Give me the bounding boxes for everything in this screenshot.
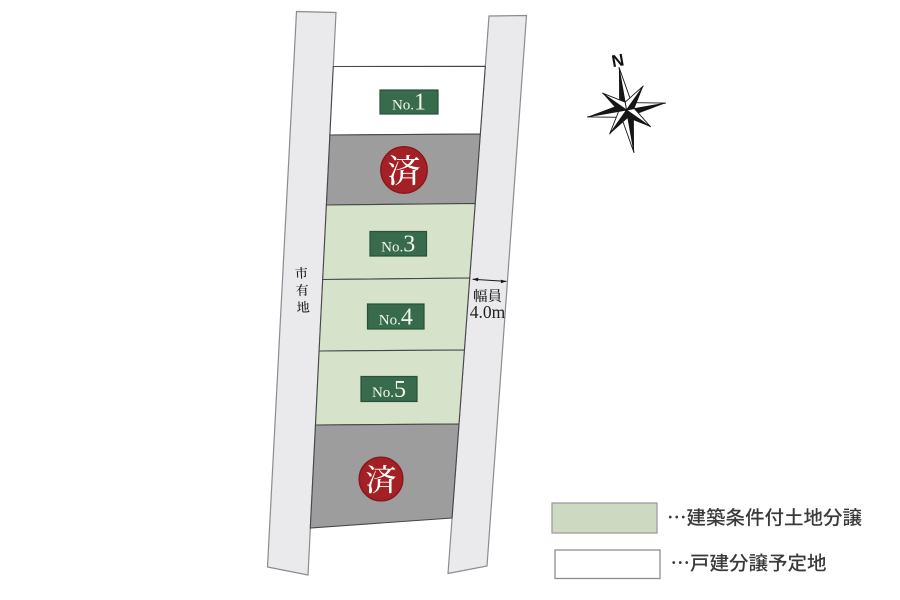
svg-text:4.0m: 4.0m [470, 302, 506, 322]
